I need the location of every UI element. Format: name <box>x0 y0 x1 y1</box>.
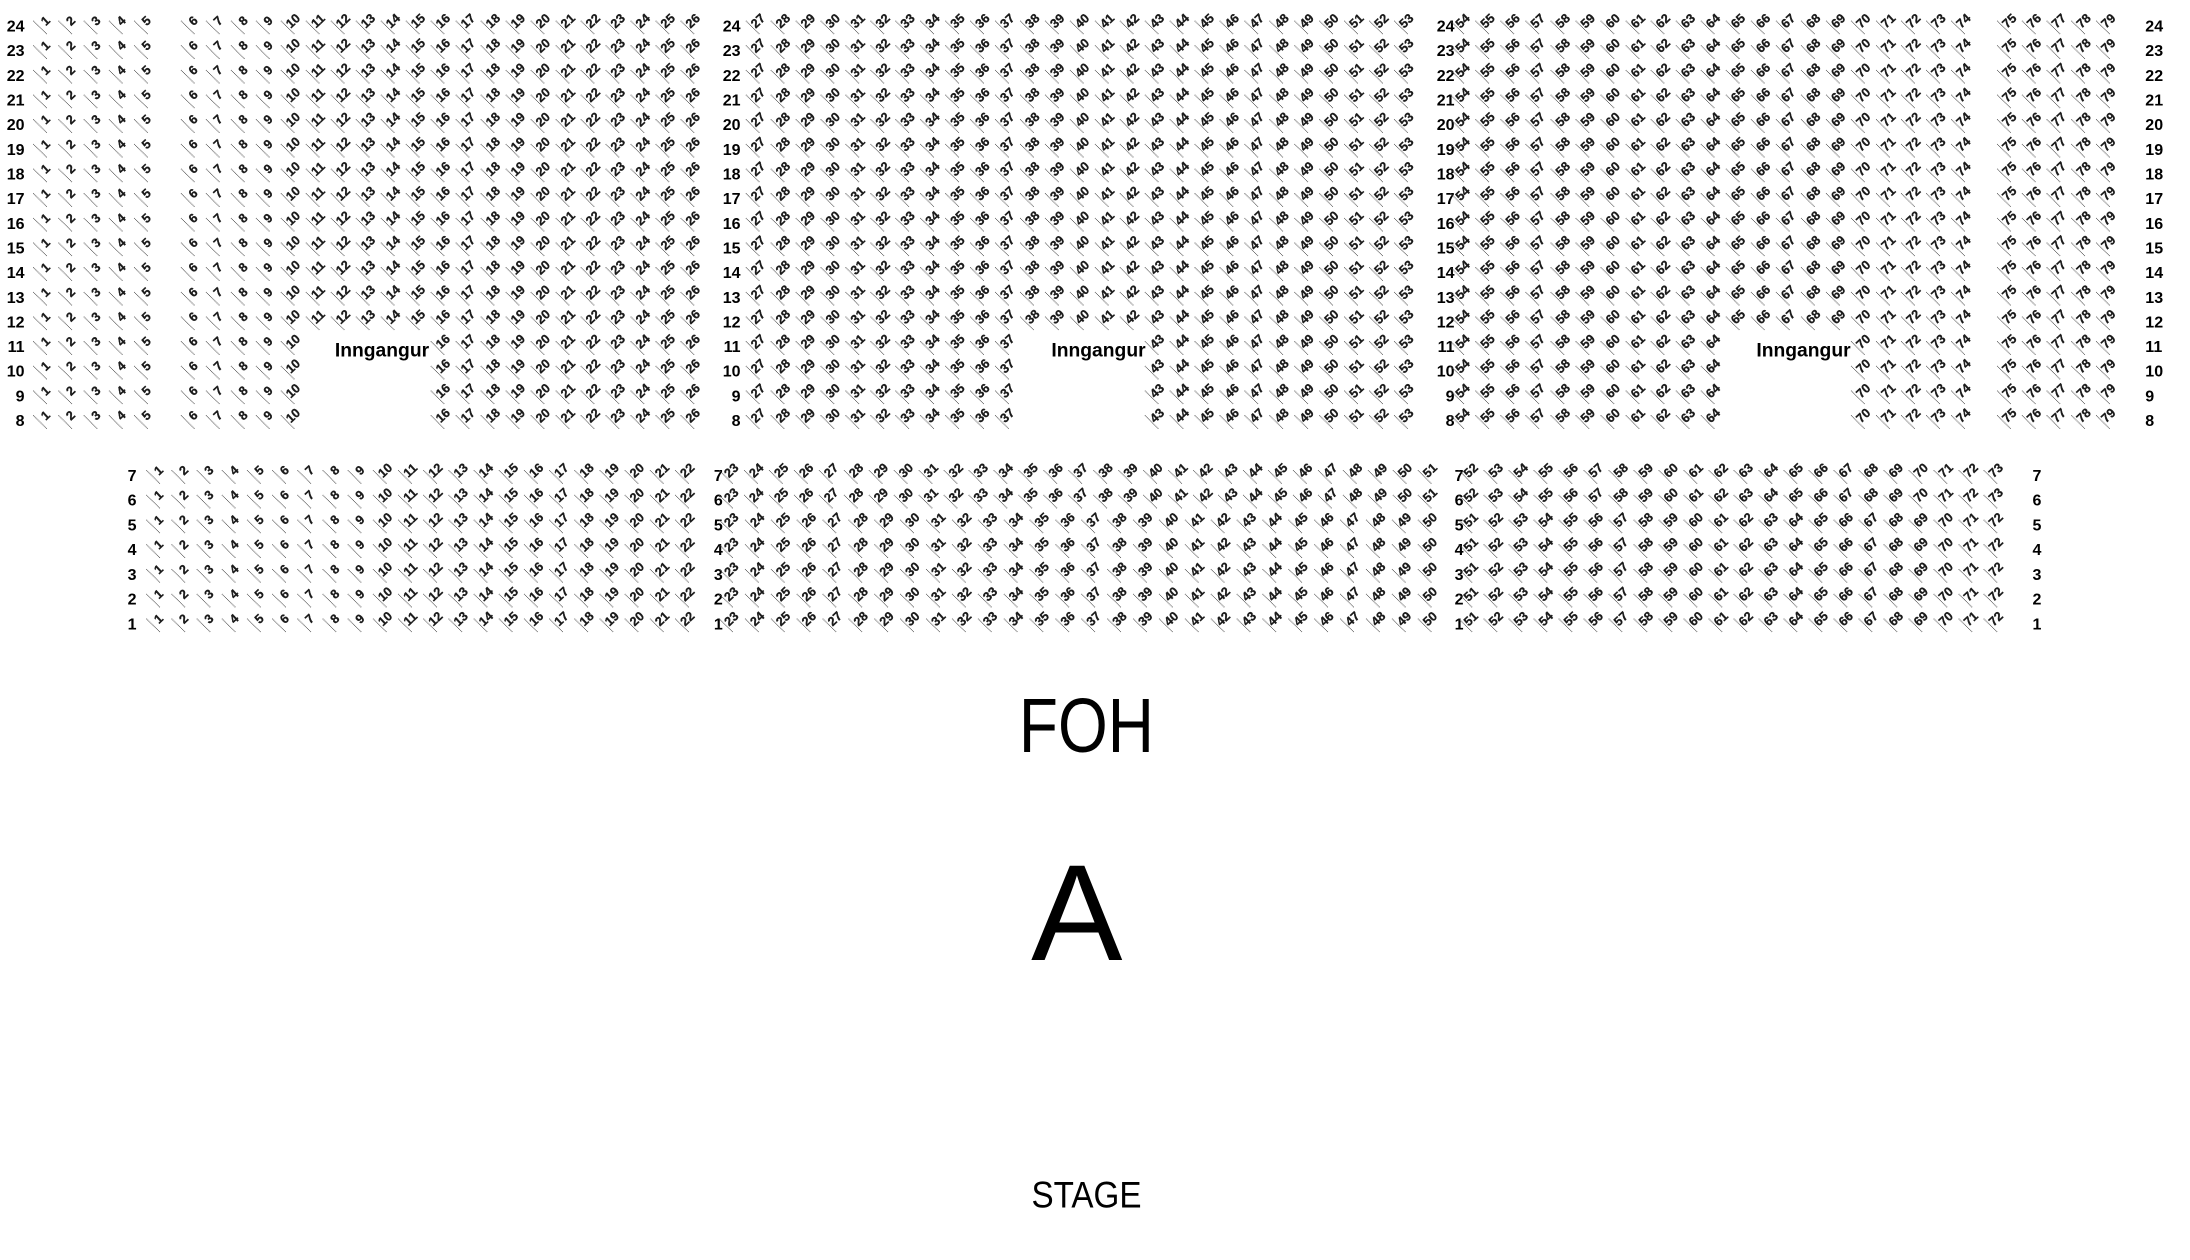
svg-text:7: 7 <box>128 468 137 485</box>
svg-text:10: 10 <box>723 364 741 381</box>
svg-text:9: 9 <box>16 388 25 405</box>
svg-text:17: 17 <box>2145 191 2163 208</box>
svg-text:13: 13 <box>2145 290 2163 307</box>
svg-text:20: 20 <box>7 117 25 134</box>
svg-text:22: 22 <box>723 68 741 85</box>
svg-text:12: 12 <box>2145 314 2163 331</box>
svg-text:8: 8 <box>16 413 25 430</box>
svg-text:12: 12 <box>723 314 741 331</box>
svg-text:18: 18 <box>723 167 741 184</box>
svg-text:23: 23 <box>7 43 25 60</box>
svg-text:1: 1 <box>128 616 137 633</box>
svg-text:24: 24 <box>723 19 741 36</box>
svg-text:3: 3 <box>2033 567 2042 584</box>
svg-text:17: 17 <box>723 191 741 208</box>
svg-text:21: 21 <box>2145 93 2163 110</box>
svg-text:8: 8 <box>732 413 741 430</box>
svg-text:8: 8 <box>2145 413 2154 430</box>
svg-text:A: A <box>1031 837 1123 990</box>
svg-text:21: 21 <box>723 93 741 110</box>
svg-text:4: 4 <box>128 542 137 559</box>
svg-text:16: 16 <box>2145 216 2163 233</box>
svg-text:10: 10 <box>7 364 25 381</box>
svg-text:21: 21 <box>7 93 25 110</box>
svg-text:Inngangur: Inngangur <box>335 341 430 362</box>
svg-text:6: 6 <box>2033 493 2042 510</box>
svg-text:1: 1 <box>2033 616 2042 633</box>
svg-text:20: 20 <box>723 117 741 134</box>
svg-text:5: 5 <box>2033 518 2042 535</box>
svg-text:15: 15 <box>2145 240 2163 257</box>
svg-text:14: 14 <box>7 265 25 282</box>
svg-text:STAGE: STAGE <box>1032 1174 1142 1215</box>
svg-text:16: 16 <box>7 216 25 233</box>
svg-text:14: 14 <box>723 265 741 282</box>
svg-text:9: 9 <box>2145 388 2154 405</box>
svg-text:19: 19 <box>7 142 25 159</box>
svg-text:20: 20 <box>2145 117 2163 134</box>
svg-text:Inngangur: Inngangur <box>1756 341 1851 362</box>
svg-text:10: 10 <box>2145 364 2163 381</box>
svg-text:22: 22 <box>7 68 25 85</box>
svg-text:5: 5 <box>128 518 137 535</box>
svg-text:18: 18 <box>2145 167 2163 184</box>
svg-text:17: 17 <box>7 191 25 208</box>
svg-text:18: 18 <box>7 167 25 184</box>
svg-text:4: 4 <box>2033 542 2042 559</box>
svg-text:11: 11 <box>8 339 25 356</box>
svg-text:9: 9 <box>732 388 741 405</box>
svg-text:11: 11 <box>2145 339 2162 356</box>
svg-text:Inngangur: Inngangur <box>1051 341 1146 362</box>
svg-text:13: 13 <box>723 290 741 307</box>
svg-text:19: 19 <box>2145 142 2163 159</box>
svg-text:7: 7 <box>2033 468 2042 485</box>
svg-text:2: 2 <box>128 592 137 609</box>
svg-text:2: 2 <box>2033 592 2042 609</box>
svg-text:22: 22 <box>2145 68 2163 85</box>
svg-text:23: 23 <box>723 43 741 60</box>
svg-text:6: 6 <box>128 493 137 510</box>
svg-text:FOH: FOH <box>1019 684 1154 769</box>
svg-text:15: 15 <box>723 240 741 257</box>
svg-text:3: 3 <box>128 567 137 584</box>
svg-text:16: 16 <box>723 216 741 233</box>
svg-text:24: 24 <box>2145 19 2163 36</box>
svg-text:11: 11 <box>724 339 741 356</box>
svg-text:23: 23 <box>2145 43 2163 60</box>
svg-text:12: 12 <box>7 314 25 331</box>
svg-text:19: 19 <box>723 142 741 159</box>
svg-text:13: 13 <box>7 290 25 307</box>
svg-text:14: 14 <box>2145 265 2163 282</box>
svg-text:15: 15 <box>7 240 25 257</box>
svg-text:24: 24 <box>7 19 25 36</box>
